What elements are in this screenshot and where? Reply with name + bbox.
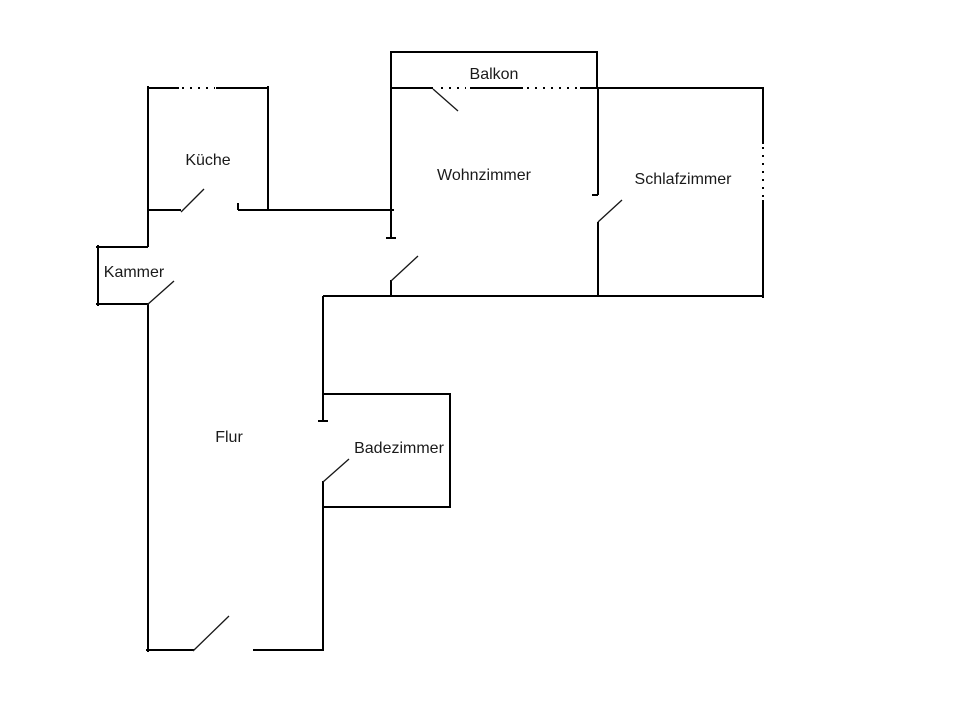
room-label-flur: Flur <box>215 429 243 446</box>
door-swing <box>433 89 458 111</box>
room-label-badezimmer: Badezimmer <box>354 440 444 457</box>
door-swing <box>598 200 622 222</box>
door-swing <box>181 189 204 212</box>
door-swing <box>391 256 418 281</box>
room-label-wohnzimmer: Wohnzimmer <box>437 167 532 184</box>
door-swing <box>147 281 174 305</box>
door-swing <box>193 616 229 651</box>
door-swing <box>323 459 349 482</box>
floor-plan-svg: BalkonKücheWohnzimmerSchlafzimmerKammerF… <box>0 0 960 722</box>
room-label-kueche: Küche <box>185 152 230 169</box>
room-label-kammer: Kammer <box>104 264 165 281</box>
room-label-schlafzimmer: Schlafzimmer <box>635 171 733 188</box>
floor-plan-canvas: BalkonKücheWohnzimmerSchlafzimmerKammerF… <box>0 0 960 722</box>
room-label-balkon: Balkon <box>470 66 519 83</box>
